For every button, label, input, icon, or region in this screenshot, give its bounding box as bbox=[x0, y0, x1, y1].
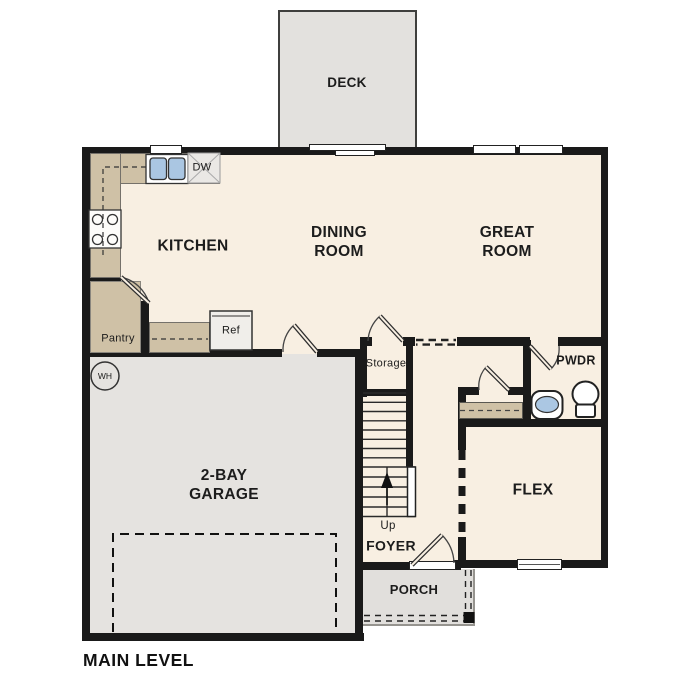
water-heater-label: WH bbox=[98, 371, 112, 381]
storage-door bbox=[368, 316, 403, 341]
stair-railing bbox=[408, 467, 416, 517]
cased-opening-dashed bbox=[416, 340, 456, 345]
room-label-deck: DECK bbox=[327, 75, 366, 91]
room-label-great: GREAT ROOM bbox=[457, 224, 557, 262]
stairs bbox=[363, 393, 416, 517]
floor-plan: DECK KITCHEN DINING ROOM GREAT ROOM 2-BA… bbox=[0, 0, 687, 687]
closet-door bbox=[479, 367, 509, 390]
page-title: MAIN LEVEL bbox=[83, 650, 194, 671]
cooktop bbox=[89, 210, 121, 248]
front-door bbox=[412, 535, 454, 565]
refrigerator-label: Ref bbox=[222, 324, 240, 337]
room-label-powder: PWDR bbox=[556, 353, 595, 368]
room-label-pantry: Pantry bbox=[101, 332, 135, 345]
kitchen-sink bbox=[146, 155, 188, 184]
toilet bbox=[573, 382, 599, 418]
garage-entry-door bbox=[283, 325, 317, 352]
garage-door-outline bbox=[113, 534, 336, 632]
powder-sink bbox=[532, 391, 563, 419]
powder-door bbox=[530, 346, 559, 369]
pantry-door bbox=[121, 277, 149, 303]
room-label-storage: Storage bbox=[366, 357, 407, 370]
stairs-up-label: Up bbox=[380, 519, 395, 533]
room-label-porch: PORCH bbox=[390, 582, 438, 598]
room-label-garage: 2-BAY GARAGE bbox=[179, 467, 269, 505]
doors bbox=[121, 277, 559, 565]
dishwasher-label: DW bbox=[193, 161, 212, 174]
room-label-flex: FLEX bbox=[513, 482, 554, 501]
room-label-kitchen: KITCHEN bbox=[158, 238, 229, 257]
porch-post bbox=[464, 612, 475, 623]
room-label-foyer: FOYER bbox=[366, 537, 416, 554]
room-label-dining: DINING ROOM bbox=[289, 224, 389, 262]
